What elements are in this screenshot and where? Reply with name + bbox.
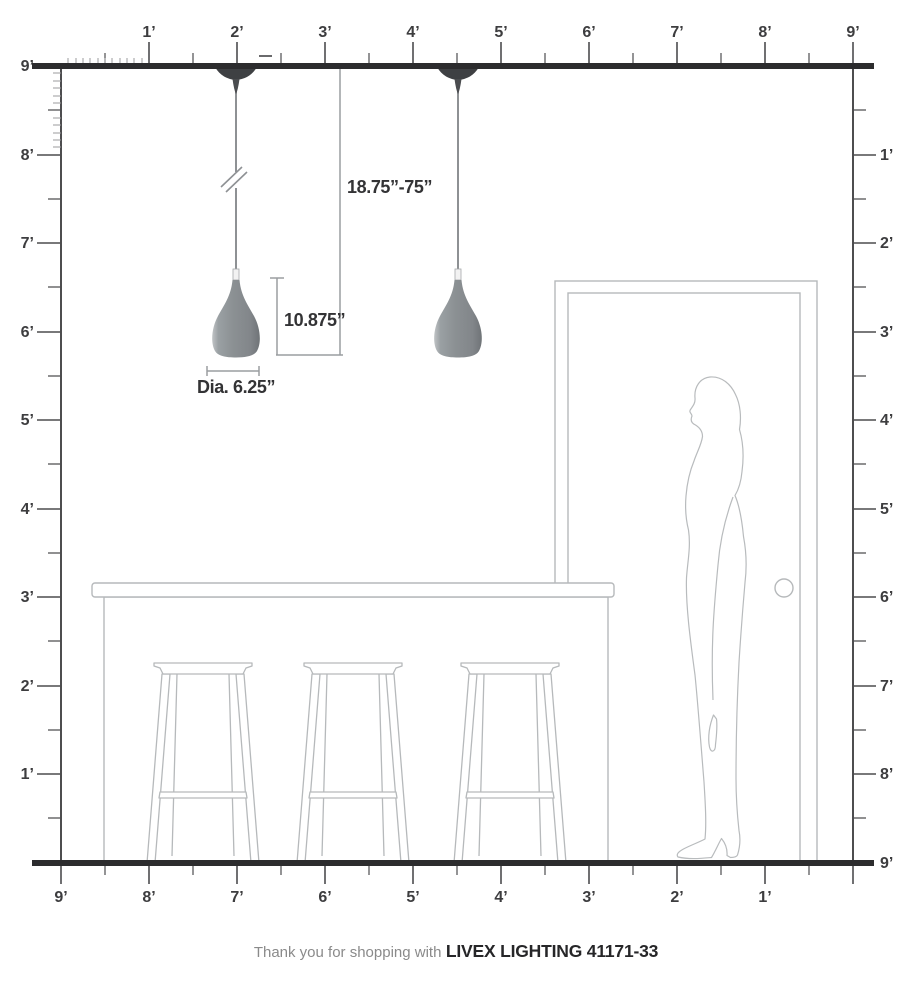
ruler-label: 7’ <box>880 678 893 695</box>
ruler-label: 6’ <box>880 589 893 606</box>
ruler-label: 9’ <box>54 889 67 906</box>
shade-diameter-label: Dia. 6.25” <box>197 377 275 397</box>
ruler-label: 9’ <box>846 24 859 41</box>
ruler-label: 7’ <box>670 24 683 41</box>
ruler-label: 8’ <box>21 147 34 164</box>
bottom-ruler-labels: 9’ 8’ 7’ 6’ 5’ 4’ 3’ 2’ 1’ <box>54 889 771 906</box>
ruler-label: 7’ <box>21 235 34 252</box>
shade-diameter-dimension <box>207 366 259 376</box>
ruler-label: 4’ <box>880 412 893 429</box>
caption-brand: LIVEX LIGHTING 41171-33 <box>446 941 658 961</box>
ruler-label: 2’ <box>21 678 34 695</box>
ruler-label: 6’ <box>21 324 34 341</box>
pendant-socket <box>233 269 239 280</box>
left-ruler-labels: 9’ 8’ 7’ 6’ 5’ 4’ 3’ 2’ 1’ <box>21 58 34 783</box>
stool-footrest <box>466 792 554 798</box>
island-base <box>104 597 608 863</box>
ruler-label: 5’ <box>406 889 419 906</box>
left-ruler-minor-ticks <box>48 110 61 818</box>
ruler-label: 5’ <box>880 501 893 518</box>
pendant-shade <box>212 280 260 358</box>
shade-height-dimension <box>270 278 284 355</box>
ruler-label: 5’ <box>494 24 507 41</box>
pendant-socket <box>455 269 461 280</box>
caption-prefix: Thank you for shopping with <box>254 944 442 961</box>
ruler-label: 4’ <box>494 889 507 906</box>
right-ruler-minor-ticks <box>853 110 866 818</box>
right-ruler <box>853 110 876 818</box>
ruler-label: 2’ <box>670 889 683 906</box>
ruler-label: 6’ <box>582 24 595 41</box>
pendant-shade <box>434 280 482 358</box>
ruler-label: 5’ <box>21 412 34 429</box>
top-ruler-major-ticks <box>149 42 853 65</box>
ruler-label: 3’ <box>21 589 34 606</box>
top-ruler-labels: 1’ 2’ 3’ 4’ 5’ 6’ 7’ 8’ 9’ <box>142 24 859 41</box>
stool-footrest <box>159 792 247 798</box>
canopy-stem <box>455 79 462 94</box>
ruler-label: 6’ <box>318 889 331 906</box>
kitchen-island <box>92 583 614 863</box>
ruler-label: 3’ <box>880 324 893 341</box>
ruler-label: 9’ <box>21 58 34 75</box>
stool-seat <box>304 663 402 674</box>
pendant-light-2 <box>434 67 482 358</box>
ruler-label: 9’ <box>880 855 893 872</box>
ruler-label: 2’ <box>880 235 893 252</box>
ruler-label: 8’ <box>880 766 893 783</box>
ruler-label: 3’ <box>318 24 331 41</box>
shade-height-label: 10.875” <box>284 310 345 330</box>
ruler-label: 1’ <box>758 889 771 906</box>
ruler-label: 4’ <box>406 24 419 41</box>
top-ruler <box>68 42 853 65</box>
ruler-label: 8’ <box>142 889 155 906</box>
stool-seat <box>154 663 252 674</box>
caption: Thank you for shopping with LIVEX LIGHTI… <box>0 941 912 962</box>
left-ruler <box>37 73 61 818</box>
right-ruler-labels: 1’ 2’ 3’ 4’ 5’ 6’ 7’ 8’ 9’ <box>880 147 893 872</box>
ruler-label: 7’ <box>230 889 243 906</box>
ruler-label: 1’ <box>21 766 34 783</box>
ruler-label: 1’ <box>880 147 893 164</box>
stool-footrest <box>309 792 397 798</box>
ruler-label: 1’ <box>142 24 155 41</box>
hang-height-label: 18.75”-75” <box>347 177 432 197</box>
bottom-ruler <box>61 863 853 884</box>
pendant-light-1 <box>212 67 260 358</box>
product-dimension-diagram: 1’ 2’ 3’ 4’ 5’ 6’ 7’ 8’ 9’ 9’ 8’ 7’ 6’ 5… <box>0 0 912 990</box>
canopy-stem <box>233 79 240 94</box>
ruler-label: 4’ <box>21 501 34 518</box>
stool-seat <box>461 663 559 674</box>
diagram-svg: 1’ 2’ 3’ 4’ 5’ 6’ 7’ 8’ 9’ 9’ 8’ 7’ 6’ 5… <box>0 0 912 990</box>
ruler-label: 8’ <box>758 24 771 41</box>
island-countertop <box>92 583 614 597</box>
ruler-label: 3’ <box>582 889 595 906</box>
ruler-label: 2’ <box>230 24 243 41</box>
